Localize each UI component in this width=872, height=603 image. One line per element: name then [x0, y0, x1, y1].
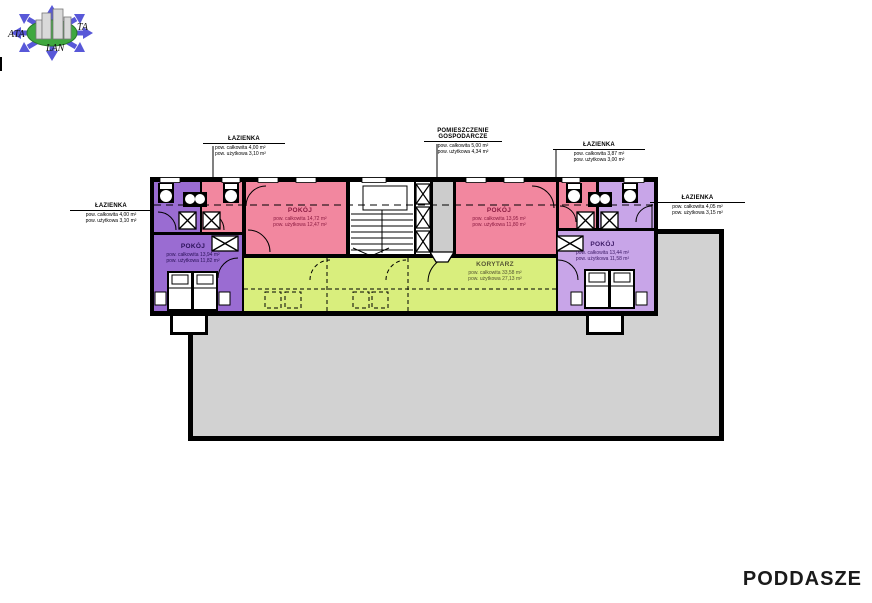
logo-text-right: TA: [77, 22, 89, 33]
bathroom-purple-left: [154, 182, 200, 232]
room-area-total: pow. całkowita 33,58 m²: [468, 270, 521, 276]
page-edge-mark: [0, 57, 2, 71]
label-bathroom-top-right: ŁAZIENKA pow. całkowita 3,87 m² pow. uży…: [553, 142, 645, 163]
room-area-total: pow. całkowita 13,95 m²: [472, 216, 525, 222]
label-corridor: KORYTARZ pow. całkowita 33,58 m² pow. uż…: [445, 262, 545, 283]
label-room-lilac-right: POKÓJ pow. całkowita 13,44 m² pow. użytk…: [555, 242, 650, 263]
room-area-total: pow. całkowita 13,44 m²: [576, 250, 629, 256]
logo-text-left: ATA: [7, 29, 26, 40]
company-logo: ATA TA LAN: [6, 4, 98, 62]
label-title: ŁAZIENKA: [650, 195, 745, 203]
room-area-usable: pow. użytkowa 11,82 m²: [166, 258, 219, 264]
room-title: POKÓJ: [555, 242, 650, 249]
logo-buildings-icon: [36, 9, 71, 39]
dormer-right: [586, 313, 624, 335]
room-area-total: pow. całkowita 13,94 m²: [166, 252, 219, 258]
label-bathroom-top-left: ŁAZIENKA pow. całkowita 4,00 m² pow. uży…: [203, 136, 285, 157]
label-room-pink-left: POKÓJ pow. całkowita 14,72 m² pow. użytk…: [250, 208, 350, 229]
label-room-purple-left: POKÓJ pow. całkowita 13,94 m² pow. użytk…: [148, 244, 238, 265]
dormer-left: [170, 313, 208, 335]
staircase-room: [350, 182, 414, 254]
logo-text-bottom: LAN: [45, 43, 66, 54]
bathroom-pink-right: [559, 182, 596, 228]
room-title: POKÓJ: [449, 208, 549, 215]
room-area-usable: pow. użytkowa 27,13 m²: [468, 276, 522, 282]
label-title: POMIESZCZENIE GOSPODARCZE: [424, 128, 502, 142]
label-bathroom-left: ŁAZIENKA pow. całkowita 4,00 m² pow. uży…: [70, 203, 152, 224]
label-title: ŁAZIENKA: [553, 142, 645, 150]
room-area-total: pow. całkowita 14,72 m²: [273, 216, 326, 222]
room-area-usable: pow. użytkowa 12,47 m²: [273, 222, 327, 228]
label-area-usable: pow. użytkowa 3,10 m²: [70, 218, 152, 224]
label-area-usable: pow. użytkowa 4,34 m²: [424, 149, 502, 155]
label-utility-room: POMIESZCZENIE GOSPODARCZE pow. całkowita…: [424, 128, 502, 155]
room-area-usable: pow. użytkowa 11,58 m²: [576, 256, 629, 262]
floor-plan-page: ATA TA LAN: [0, 0, 872, 603]
label-title: ŁAZIENKA: [70, 203, 152, 211]
label-area-usable: pow. użytkowa 3,10 m²: [203, 151, 285, 157]
bathroom-lilac-right: [599, 182, 654, 228]
label-title: ŁAZIENKA: [203, 136, 285, 144]
room-area-usable: pow. użytkowa 11,80 m²: [472, 222, 525, 228]
shaft-room: [416, 182, 430, 254]
label-room-pink-right: POKÓJ pow. całkowita 13,95 m² pow. użytk…: [449, 208, 549, 229]
sheet-title: PODDASZE: [743, 568, 862, 591]
room-title: POKÓJ: [148, 244, 238, 251]
room-title: KORYTARZ: [445, 262, 545, 269]
label-area-usable: pow. użytkowa 3,00 m²: [553, 157, 645, 163]
label-area-usable: pow. użytkowa 3,15 m²: [650, 210, 745, 216]
room-title: POKÓJ: [250, 208, 350, 215]
label-bathroom-far-right: ŁAZIENKA pow. całkowita 4,05 m² pow. uży…: [650, 195, 745, 216]
bathroom-pink-left: [202, 182, 242, 232]
